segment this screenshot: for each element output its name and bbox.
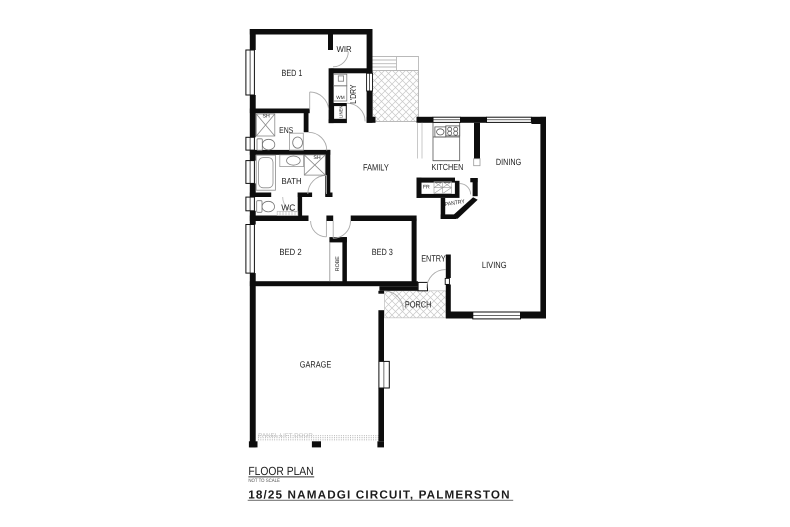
svg-text:PORCH: PORCH	[405, 300, 432, 310]
svg-text:BED 1: BED 1	[282, 68, 303, 78]
svg-text:WM: WM	[336, 95, 344, 100]
svg-text:FLOOR PLAN: FLOOR PLAN	[248, 464, 313, 478]
svg-text:LIVING: LIVING	[482, 260, 507, 270]
svg-text:PANEL LIFT DOOR: PANEL LIFT DOOR	[258, 433, 313, 439]
svg-text:L'DRY: L'DRY	[348, 84, 358, 103]
svg-text:ROBE: ROBE	[335, 256, 341, 271]
svg-text:WC: WC	[281, 203, 295, 213]
svg-text:WIR: WIR	[337, 44, 352, 54]
svg-text:GARAGE: GARAGE	[300, 359, 332, 369]
svg-text:BED 3: BED 3	[372, 247, 393, 257]
svg-text:FAMILY: FAMILY	[363, 162, 389, 172]
svg-text:DINING: DINING	[496, 157, 521, 167]
svg-text:SH: SH	[263, 113, 270, 119]
svg-text:SH: SH	[313, 155, 320, 161]
svg-text:ENTRY: ENTRY	[421, 254, 446, 264]
svg-text:BED 2: BED 2	[279, 247, 301, 257]
svg-text:NOT TO SCALE: NOT TO SCALE	[248, 478, 280, 484]
svg-text:KITCHEN: KITCHEN	[432, 162, 464, 172]
svg-text:FR: FR	[423, 184, 430, 190]
svg-text:BATH: BATH	[282, 176, 302, 186]
svg-text:LINEN: LINEN	[338, 106, 343, 119]
svg-text:ENS: ENS	[279, 125, 293, 135]
